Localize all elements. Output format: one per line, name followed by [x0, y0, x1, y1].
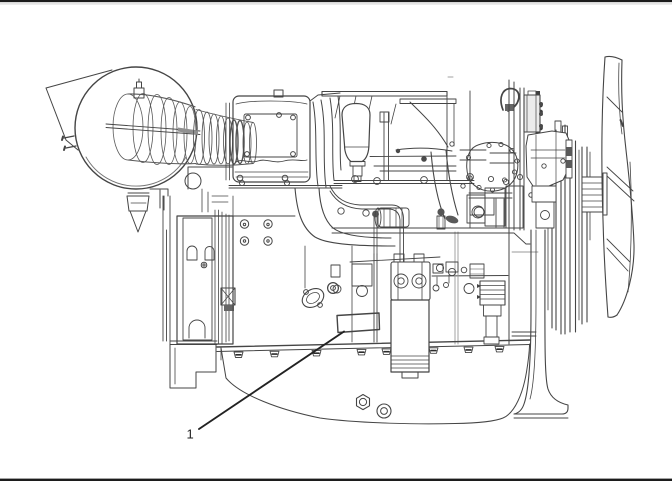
svg-text:1: 1	[187, 427, 194, 442]
